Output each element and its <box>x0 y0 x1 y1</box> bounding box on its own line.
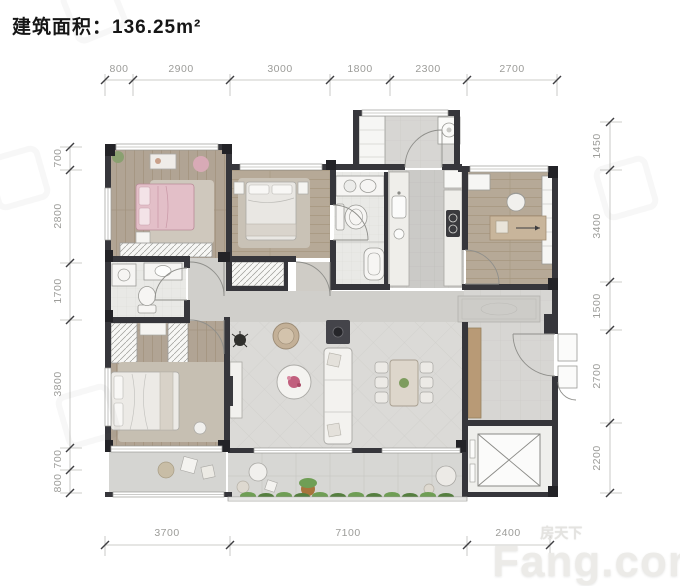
hall-closet-icon <box>230 262 284 286</box>
sofa-icon <box>324 348 352 444</box>
hall-nook-floor <box>188 258 228 293</box>
wardrobe-icon <box>111 323 137 363</box>
cushion-icon <box>201 465 215 479</box>
utility-cabinet-icon <box>359 116 385 168</box>
dim-label: 3800 <box>52 371 64 396</box>
basin-icon <box>394 229 404 239</box>
dim-label: 700 <box>52 449 64 468</box>
dim-label: 3000 <box>267 63 292 75</box>
dim-label: 2200 <box>591 445 603 470</box>
floorplan-drawing <box>0 0 680 584</box>
dim-label: 2800 <box>52 203 64 228</box>
dim-label: 7100 <box>335 527 360 539</box>
fridge-icon <box>444 170 462 188</box>
chair-icon <box>420 392 433 403</box>
bedroom2-furniture <box>234 178 310 248</box>
wardrobe-icon <box>120 243 212 257</box>
exterior-cabinet-icon <box>558 366 577 388</box>
foyer-rug-icon <box>458 296 540 322</box>
watermark-fang: 房天下 Fang.com <box>492 526 680 584</box>
shower-icon <box>112 264 136 286</box>
wardrobe-icon <box>168 323 188 365</box>
dim-label: 2700 <box>499 63 524 75</box>
chair-icon <box>420 362 433 373</box>
coffee-table-icon <box>277 365 311 399</box>
chair-icon <box>375 377 388 388</box>
dim-label: 2700 <box>591 363 603 388</box>
stove-icon <box>446 210 460 237</box>
floorplan-page: { "title": { "text": "建筑面积：136.25m²" }, … <box>0 0 680 584</box>
dim-label: 1800 <box>347 63 372 75</box>
media-console-icon <box>326 320 350 344</box>
nightstand-icon <box>136 232 150 244</box>
chair-icon <box>436 466 456 486</box>
dim-label: 1500 <box>591 293 603 318</box>
dim-label: 800 <box>52 473 64 492</box>
stool-icon <box>194 422 206 434</box>
bed-icon <box>111 372 179 430</box>
dim-label: 3400 <box>591 213 603 238</box>
armchair-icon <box>273 323 299 349</box>
dining-furniture <box>375 360 433 406</box>
chair-icon <box>375 362 388 373</box>
pouf-icon <box>193 156 209 172</box>
chair-icon <box>249 463 267 481</box>
dim-label: 2900 <box>168 63 193 75</box>
kitchen-counter <box>444 190 462 286</box>
toilet-icon <box>336 204 367 230</box>
side-table-icon <box>237 481 249 493</box>
chair-icon <box>507 193 525 211</box>
sink-icon <box>360 180 376 193</box>
cabinet-icon <box>468 174 490 190</box>
kids-bed-icon <box>136 184 194 230</box>
elevator-icon <box>470 434 540 486</box>
shelf-icon <box>150 154 176 169</box>
exterior-cabinet-icon <box>558 334 577 361</box>
dim-label: 2300 <box>415 63 440 75</box>
dresser-icon <box>140 323 166 335</box>
basket-icon <box>158 462 174 478</box>
dim-label: 800 <box>109 63 128 75</box>
sink-icon <box>392 196 406 218</box>
chair-icon <box>420 377 433 388</box>
nightstand-icon <box>298 182 308 194</box>
dim-label: 1700 <box>52 278 64 303</box>
watermark-brand-en: Fang.com <box>492 540 680 584</box>
bed-icon <box>246 182 296 240</box>
dim-label: 700 <box>52 148 64 167</box>
shoe-cabinet-icon <box>468 328 481 418</box>
nightstand-icon <box>234 182 244 194</box>
desk-icon <box>490 216 546 240</box>
chair-icon <box>375 392 388 403</box>
dim-label: 1450 <box>591 133 603 158</box>
master-bedroom-furniture <box>111 362 242 442</box>
dim-label: 3700 <box>154 527 179 539</box>
toilet-icon <box>138 287 156 314</box>
mirror-icon <box>344 180 356 192</box>
sink-icon <box>155 266 171 277</box>
centerpiece-icon <box>399 378 409 388</box>
